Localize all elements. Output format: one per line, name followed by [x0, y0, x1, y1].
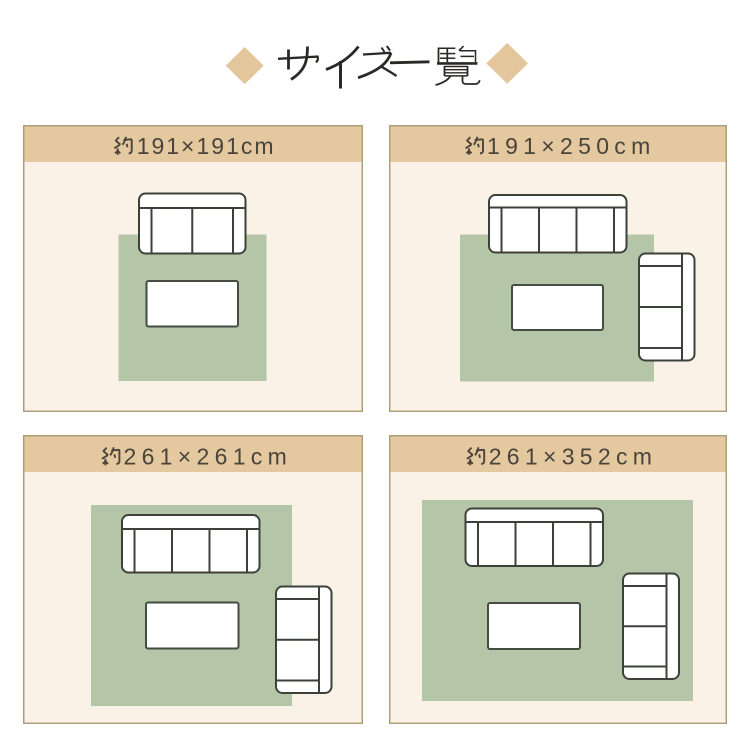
svg-text:261×352cm: 261×352cm: [489, 444, 658, 470]
svg-text:191×191cm: 191×191cm: [137, 133, 276, 159]
svg-text:261×261cm: 261×261cm: [124, 444, 293, 470]
svg-text:191×250cm: 191×250cm: [487, 133, 656, 159]
